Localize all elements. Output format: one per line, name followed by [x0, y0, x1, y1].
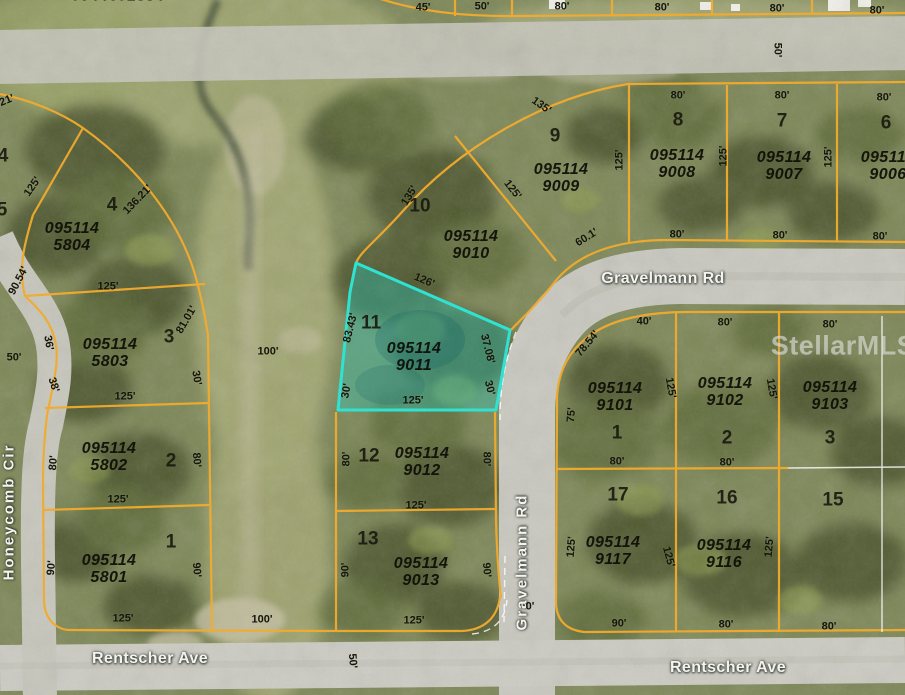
dimension-label: 80' — [481, 452, 492, 467]
dimension-label: 125' — [663, 377, 677, 400]
dimension-label: 100' — [252, 615, 273, 626]
lot-number: 13 — [357, 530, 378, 549]
lot-number: 3 — [825, 429, 836, 448]
dimension-label: 80' — [873, 232, 888, 243]
parcel-number: 0951149102 — [698, 375, 753, 409]
dimension-label: 80' — [775, 91, 790, 102]
lot-number: 2 — [166, 452, 177, 471]
dimension-label: 90' — [612, 619, 627, 630]
lot-number: 8 — [673, 111, 684, 130]
dimension-label: 125' — [98, 282, 119, 293]
dimension-label: 80' — [342, 452, 353, 467]
dimension-label: 80' — [870, 6, 885, 17]
dimension-label: 36' — [41, 335, 54, 352]
dimension-label: 90' — [46, 560, 58, 576]
dimension-label: 80' — [190, 452, 202, 468]
parcel-number: 0951149116 — [697, 537, 752, 571]
dimension-label: 30' — [189, 370, 202, 387]
parcel-number-highlighted: 0951149011 — [387, 340, 442, 374]
parcel-number: 0951149103 — [803, 379, 858, 413]
dimension-label: 125' — [501, 178, 523, 201]
lot-number: 4 — [107, 196, 118, 215]
lot-number: 11 — [361, 314, 381, 333]
parcel-number: 0951149007 — [757, 149, 812, 183]
dimension-label: 90' — [480, 562, 492, 578]
dimension-label: 80' — [48, 455, 60, 471]
dimension-label: 125' — [764, 378, 778, 401]
partial-label: 0944601884 — [72, 0, 165, 5]
dimension-label: 50' — [772, 43, 783, 58]
dimension-label: 125' — [115, 392, 136, 403]
parcel-number: 0951149012 — [395, 445, 450, 479]
parcel-number: 0951145801 — [82, 552, 137, 586]
dimension-label: 30' — [340, 383, 353, 400]
dimension-label: 80' — [720, 458, 735, 469]
dimension-label: 80' — [670, 230, 685, 241]
dimension-label: 80' — [719, 620, 734, 631]
lot-number: 15 — [822, 491, 843, 510]
dimension-label: 125' — [764, 536, 777, 558]
dimension-label: 0' — [526, 602, 535, 613]
parcel-number: 0951149006 — [861, 149, 905, 183]
dimension-label: 125' — [824, 147, 835, 168]
dimension-label: 80' — [877, 93, 892, 104]
dimension-label: 37.08' — [478, 333, 496, 365]
dimension-label: 125' — [403, 396, 424, 407]
street-label: Gravelmann Rd — [601, 271, 724, 287]
dimension-label: 60.1' — [574, 227, 600, 249]
aerial-parcel-map: Gravelmann RdGravelmann RdRentscher AveR… — [0, 0, 905, 695]
lot-number: 16 — [716, 489, 737, 508]
dimension-label: 75' — [566, 407, 578, 423]
street-label: Rentscher Ave — [670, 660, 786, 676]
dimension-label: 136.21' — [121, 183, 154, 217]
dimension-label: 125' — [406, 501, 427, 512]
dimension-label: 80' — [822, 622, 837, 633]
dimension-label: 80' — [610, 457, 625, 468]
lot-number: 2 — [722, 429, 733, 448]
dimension-label: 81.01' — [175, 304, 200, 336]
street-label: Honeycomb Cir — [2, 444, 17, 581]
dimension-label: 80' — [773, 231, 788, 242]
lot-number: 1 — [612, 424, 623, 443]
dimension-label: 125' — [108, 495, 129, 506]
partial-label: 4 — [0, 147, 8, 166]
dimension-label: 135' — [529, 95, 552, 116]
dimension-label: 50' — [7, 353, 22, 364]
parcel-number: 0951149010 — [444, 228, 499, 262]
dimension-label: 125' — [404, 616, 425, 627]
parcel-number: 0951149101 — [588, 380, 643, 414]
dimension-label: 80' — [718, 318, 733, 329]
parcel-number: 0951145802 — [82, 440, 137, 474]
dimension-label: 50' — [475, 2, 490, 13]
dimension-label: 21' — [0, 93, 16, 109]
dimension-label: 80' — [655, 3, 670, 14]
lot-number: 17 — [607, 486, 628, 505]
dimension-label: 78.54' — [574, 329, 602, 359]
dimension-label: 40' — [637, 317, 652, 328]
dimension-label: 90' — [190, 562, 202, 578]
dimension-label: 125' — [660, 545, 676, 568]
street-label: Rentscher Ave — [92, 651, 208, 667]
lot-number: 6 — [881, 114, 892, 133]
lot-number: 9 — [550, 127, 561, 146]
partial-label: 5 — [0, 201, 7, 220]
parcel-number: 0951149013 — [394, 555, 449, 589]
dimension-label: 126' — [412, 272, 436, 290]
dimension-label: 125' — [615, 150, 626, 171]
dimension-label: 38' — [45, 376, 60, 394]
dimension-label: 90' — [341, 563, 352, 578]
lot-number: 7 — [777, 112, 788, 131]
map-annotations: Gravelmann RdGravelmann RdRentscher AveR… — [0, 0, 905, 695]
dimension-label: 80' — [555, 2, 570, 13]
dimension-label: 125' — [22, 175, 43, 198]
parcel-number: 0951149117 — [586, 534, 641, 568]
dimension-label: 125' — [113, 614, 134, 625]
dimension-label: 100' — [258, 347, 279, 358]
parcel-number: 0951149009 — [534, 161, 589, 195]
dimension-label: 125' — [566, 536, 579, 558]
dimension-label: 80' — [671, 91, 686, 102]
parcel-number: 0951145804 — [45, 220, 100, 254]
parcel-number: 0951145803 — [83, 336, 138, 370]
dimension-label: 80' — [823, 320, 838, 331]
parcel-number: 0951149008 — [650, 147, 705, 181]
lot-number: 12 — [358, 447, 379, 466]
dimension-label: 90.54' — [7, 265, 31, 297]
dimension-label: 30' — [482, 379, 496, 396]
dimension-label: 50' — [346, 653, 358, 669]
dimension-label: 45' — [416, 3, 431, 14]
stellar-mls-watermark: StellarMLS — [771, 331, 905, 362]
lot-number: 3 — [164, 328, 175, 347]
dimension-label: 83.43' — [342, 312, 360, 344]
dimension-label: 80' — [770, 4, 785, 15]
lot-number: 1 — [166, 533, 177, 552]
dimension-label: 125' — [719, 146, 730, 167]
